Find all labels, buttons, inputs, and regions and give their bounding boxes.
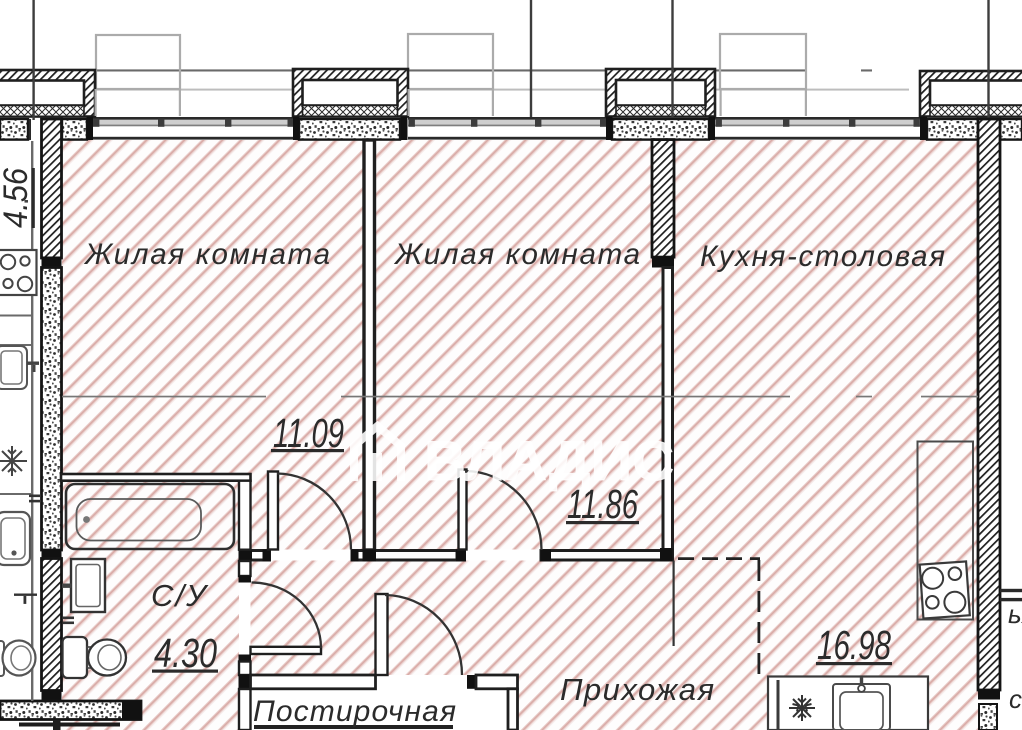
svg-text:Жилая комната: Жилая комната [393,238,640,271]
svg-text:ВЛАДИС: ВЛАДИС [424,429,674,492]
svg-text:4.30: 4.30 [154,630,217,676]
svg-text:Жилая комната: Жилая комната [83,238,330,271]
svg-text:ст: ст [1009,684,1022,714]
svg-text:С/У: С/У [151,578,209,613]
svg-text:Кухня-столовая: Кухня-столовая [700,240,945,273]
svg-text:Прихожая: Прихожая [560,672,714,707]
svg-text:16.98: 16.98 [817,622,891,668]
svg-text:ья: ья [1008,599,1022,629]
svg-text:4.56: 4.56 [0,168,35,228]
svg-text:Постирочная: Постирочная [253,695,456,728]
